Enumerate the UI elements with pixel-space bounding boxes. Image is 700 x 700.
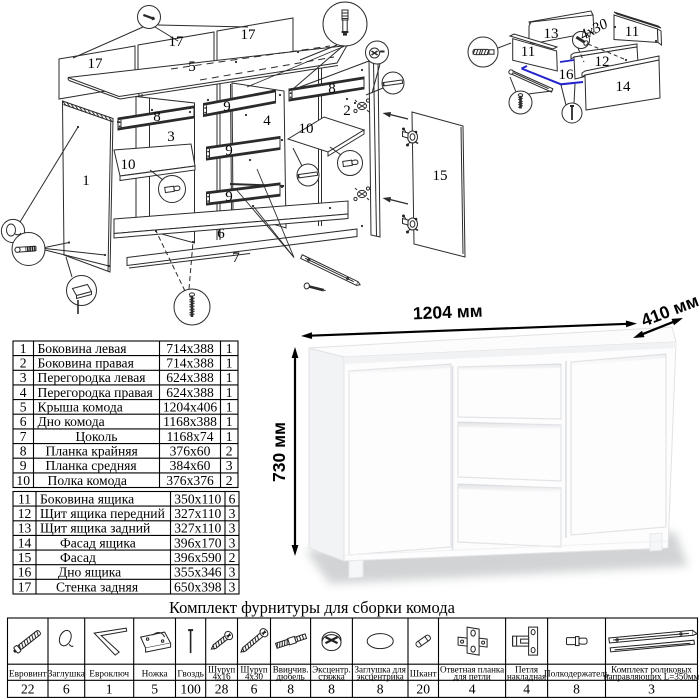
svg-text:15: 15 — [18, 550, 32, 565]
svg-text:1204 мм: 1204 мм — [413, 301, 483, 324]
svg-text:1204х406: 1204х406 — [163, 400, 218, 415]
svg-text:Боковина правая: Боковина правая — [38, 356, 134, 371]
svg-text:Крыша комода: Крыша комода — [38, 400, 123, 415]
svg-text:8: 8 — [573, 682, 580, 697]
svg-text:5: 5 — [188, 59, 196, 75]
svg-text:Щит ящика передний: Щит ящика передний — [40, 506, 165, 521]
svg-text:направляющих L=350мм: направляющих L=350мм — [604, 671, 700, 681]
svg-text:28: 28 — [215, 682, 229, 697]
svg-text:17: 17 — [241, 27, 257, 43]
svg-text:6: 6 — [251, 682, 258, 697]
svg-text:396х590: 396х590 — [174, 550, 222, 565]
svg-text:Перегородка правая: Перегородка правая — [38, 385, 153, 400]
svg-text:10: 10 — [16, 473, 30, 488]
svg-text:Боковина ящика: Боковина ящика — [40, 491, 134, 506]
svg-text:1: 1 — [20, 341, 27, 356]
svg-text:Щит ящика задний: Щит ящика задний — [40, 521, 150, 536]
svg-text:4х16: 4х16 — [213, 671, 232, 681]
svg-text:12: 12 — [18, 506, 32, 521]
svg-text:1: 1 — [106, 682, 113, 697]
svg-text:Планка средняя: Планка средняя — [46, 458, 137, 473]
svg-text:Дно ящика: Дно ящика — [58, 565, 121, 580]
svg-text:для петли: для петли — [453, 671, 490, 681]
svg-text:1: 1 — [226, 341, 233, 356]
svg-text:8: 8 — [153, 109, 161, 125]
svg-text:Комплект фурнитуры для сборки: Комплект фурнитуры для сборки комода — [169, 598, 456, 617]
svg-text:Фасад ящика: Фасад ящика — [60, 535, 136, 550]
svg-text:1: 1 — [226, 385, 233, 400]
svg-text:3: 3 — [229, 579, 236, 594]
svg-text:6: 6 — [229, 491, 236, 506]
svg-text:2: 2 — [229, 550, 236, 565]
svg-text:4: 4 — [469, 682, 476, 697]
svg-text:4: 4 — [20, 385, 27, 400]
svg-text:100: 100 — [180, 682, 201, 697]
svg-text:Перегородка левая: Перегородка левая — [38, 370, 146, 385]
svg-text:1168х388: 1168х388 — [163, 414, 217, 429]
svg-text:Фасад: Фасад — [60, 550, 96, 565]
svg-text:3: 3 — [229, 565, 236, 580]
svg-text:Полка комода: Полка комода — [48, 473, 127, 488]
svg-text:9: 9 — [223, 99, 231, 115]
svg-text:14: 14 — [18, 535, 32, 550]
svg-text:714х388: 714х388 — [166, 356, 214, 371]
svg-text:2: 2 — [20, 356, 27, 371]
svg-text:Евровинт: Евровинт — [9, 670, 47, 680]
svg-text:5: 5 — [20, 400, 27, 415]
svg-text:20: 20 — [416, 682, 430, 697]
svg-text:4: 4 — [523, 682, 530, 697]
svg-text:Планка крайняя: Планка крайняя — [46, 444, 138, 459]
svg-text:4: 4 — [263, 113, 271, 129]
svg-text:396х170: 396х170 — [174, 535, 222, 550]
svg-text:1: 1 — [226, 400, 233, 415]
svg-text:1168х74: 1168х74 — [166, 429, 213, 444]
svg-text:16: 16 — [18, 565, 32, 580]
svg-text:624х388: 624х388 — [166, 385, 214, 400]
svg-text:3: 3 — [229, 506, 236, 521]
svg-text:Дно комода: Дно комода — [38, 414, 105, 429]
svg-text:8: 8 — [328, 682, 335, 697]
svg-text:2: 2 — [226, 444, 233, 459]
svg-text:Стенка задняя: Стенка задняя — [56, 579, 138, 594]
svg-text:14: 14 — [616, 79, 632, 95]
svg-text:384х60: 384х60 — [170, 458, 211, 473]
svg-text:Полкодержатель: Полкодержатель — [544, 670, 609, 680]
svg-text:327х110: 327х110 — [174, 521, 221, 536]
svg-text:9: 9 — [225, 143, 233, 159]
svg-text:6: 6 — [217, 226, 225, 242]
svg-text:Шкант: Шкант — [410, 670, 437, 680]
svg-text:22: 22 — [21, 682, 35, 697]
svg-text:350х110: 350х110 — [174, 491, 221, 506]
svg-text:11: 11 — [18, 491, 31, 506]
svg-text:730 мм: 730 мм — [269, 422, 289, 482]
svg-text:9: 9 — [225, 189, 233, 205]
svg-text:13: 13 — [18, 521, 32, 536]
svg-text:3: 3 — [226, 458, 233, 473]
svg-text:Заглушка: Заглушка — [48, 670, 85, 680]
svg-text:3: 3 — [648, 682, 655, 697]
svg-text:Цоколь: Цоколь — [76, 429, 118, 444]
svg-text:714х388: 714х388 — [166, 341, 214, 356]
svg-text:7: 7 — [20, 429, 27, 444]
svg-text:3: 3 — [229, 521, 236, 536]
svg-text:11: 11 — [521, 44, 535, 60]
svg-text:650х398: 650х398 — [174, 579, 222, 594]
svg-text:2: 2 — [226, 473, 233, 488]
svg-text:6: 6 — [63, 682, 70, 697]
svg-text:7: 7 — [232, 250, 240, 266]
svg-text:9: 9 — [20, 458, 27, 473]
svg-text:8: 8 — [377, 682, 384, 697]
svg-text:10: 10 — [121, 157, 136, 173]
svg-text:6: 6 — [20, 414, 27, 429]
svg-text:10: 10 — [299, 121, 314, 137]
svg-text:Гвоздь: Гвоздь — [177, 670, 203, 680]
svg-text:5: 5 — [151, 682, 158, 697]
svg-text:327х110: 327х110 — [174, 506, 221, 521]
svg-text:дюбель: дюбель — [276, 671, 304, 681]
svg-text:1: 1 — [226, 414, 233, 429]
svg-text:4х30: 4х30 — [245, 671, 264, 681]
svg-text:376х60: 376х60 — [170, 444, 211, 459]
svg-text:355х346: 355х346 — [174, 565, 222, 580]
svg-text:стяжка: стяжка — [318, 671, 344, 681]
svg-text:Боковина левая: Боковина левая — [38, 341, 127, 356]
svg-text:3: 3 — [167, 129, 175, 145]
svg-text:1: 1 — [226, 356, 233, 371]
svg-text:11: 11 — [625, 24, 639, 40]
svg-text:Ножка: Ножка — [142, 670, 168, 680]
svg-text:3: 3 — [20, 370, 27, 385]
svg-text:Евроключ: Евроключ — [89, 670, 129, 680]
svg-text:эксцентрика: эксцентрика — [357, 671, 404, 681]
svg-text:1: 1 — [226, 370, 233, 385]
svg-text:3: 3 — [229, 535, 236, 550]
svg-text:15: 15 — [433, 168, 448, 184]
svg-text:16: 16 — [559, 67, 575, 83]
svg-text:1: 1 — [82, 173, 90, 189]
svg-text:624х388: 624х388 — [166, 370, 214, 385]
svg-text:376х376: 376х376 — [166, 473, 214, 488]
svg-text:2: 2 — [343, 103, 351, 119]
svg-text:8: 8 — [287, 682, 294, 697]
svg-text:8: 8 — [20, 444, 27, 459]
svg-text:1: 1 — [226, 429, 233, 444]
svg-text:17: 17 — [18, 579, 32, 594]
svg-text:накладная: накладная — [507, 671, 546, 681]
svg-text:8: 8 — [328, 81, 336, 97]
svg-text:17: 17 — [88, 56, 104, 72]
svg-text:13: 13 — [544, 26, 559, 42]
